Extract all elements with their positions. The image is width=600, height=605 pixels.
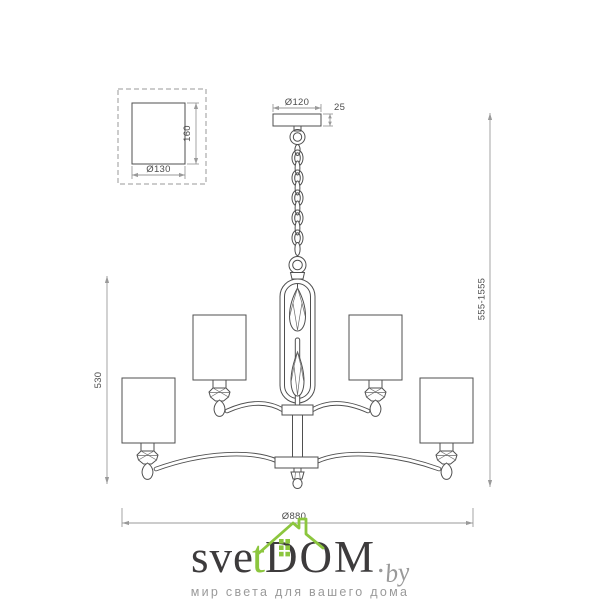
bottom-finial: [291, 468, 304, 489]
chain-links: [292, 150, 303, 256]
technical-drawing: Ø130 160 Ø120 25: [0, 0, 600, 600]
dimension-overall-width-group: Ø880: [122, 508, 473, 527]
lampshade-upper-left: [193, 315, 246, 380]
product-drawing-page: Ø130 160 Ø120 25: [0, 0, 600, 600]
canopy-ring: [290, 130, 305, 145]
arm-upper-right: [312, 403, 368, 411]
dimension-overall-height: 555-1555: [477, 278, 488, 321]
dimension-shade-diameter: Ø130: [146, 164, 170, 175]
dimension-canopy-diameter: Ø120: [285, 97, 309, 108]
logo-text-dom-label: DOM: [265, 532, 376, 582]
hanging-ring: [289, 257, 306, 274]
dimension-canopy-thickness: 25: [334, 102, 345, 113]
logo-text-by: by: [383, 557, 411, 589]
logo-text-t: t: [252, 533, 265, 581]
logo-text-dom: DOM: [265, 533, 376, 581]
lampshade-upper-right: [349, 315, 402, 380]
shade-detail-box: Ø130 160: [118, 89, 206, 184]
upper-arm-hub: [282, 405, 313, 415]
lampshade-lower-right: [420, 378, 473, 443]
brand-logo: svet DOM.by мир света для вашего дома: [0, 533, 600, 599]
candle-lower-left: [137, 443, 158, 479]
lower-arm-hub: [275, 457, 318, 468]
detail-shade-outline: [132, 103, 185, 164]
central-column: [293, 415, 303, 457]
dimension-overall-width: Ø880: [282, 511, 306, 522]
arm-lower-right: [318, 454, 439, 469]
dimension-shade-height: 160: [182, 125, 193, 142]
dimension-body-height-group: 530: [93, 276, 109, 484]
body-top-cap: [291, 273, 305, 280]
dimension-body-height: 530: [93, 372, 104, 389]
suspension-chain: [289, 145, 306, 274]
logo-wordmark: svet DOM.by: [191, 533, 409, 583]
arm-lower-left: [156, 454, 277, 469]
lampshade-lower-left: [122, 378, 175, 443]
ceiling-canopy: Ø120 25: [273, 97, 345, 145]
chandelier-body: [280, 273, 315, 408]
logo-tagline: мир света для вашего дома: [0, 585, 600, 599]
canopy-plate: [273, 114, 321, 126]
candle-lower-right: [436, 443, 457, 479]
logo-text-sve: sve: [191, 533, 254, 581]
arm-upper-left: [227, 403, 283, 411]
dimension-overall-height-group: 555-1555: [477, 113, 493, 487]
